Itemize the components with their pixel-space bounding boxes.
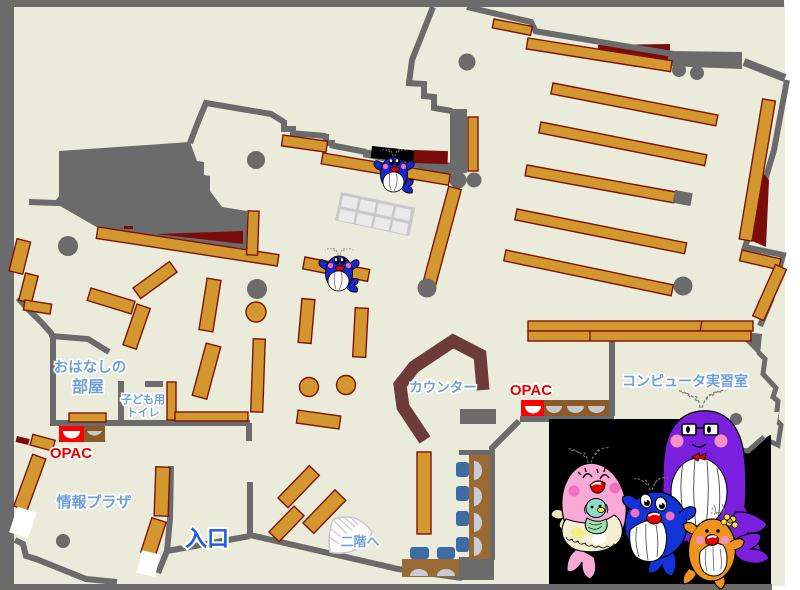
svg-text:トイレ: トイレ: [127, 406, 160, 419]
svg-text:コンピュータ実習室: コンピュータ実習室: [622, 373, 748, 389]
svg-text:OPAC: OPAC: [50, 445, 92, 462]
svg-text:二階へ: 二階へ: [340, 534, 379, 549]
svg-text:情報プラザ: 情報プラザ: [56, 493, 131, 511]
svg-text:OPAC: OPAC: [510, 382, 552, 399]
svg-text:おはなしの: おはなしの: [54, 359, 127, 376]
svg-text:部屋: 部屋: [72, 377, 104, 396]
svg-text:入口: 入口: [185, 526, 229, 551]
svg-text:カウンター: カウンター: [409, 380, 477, 395]
svg-text:子ども用: 子ども用: [121, 393, 165, 406]
